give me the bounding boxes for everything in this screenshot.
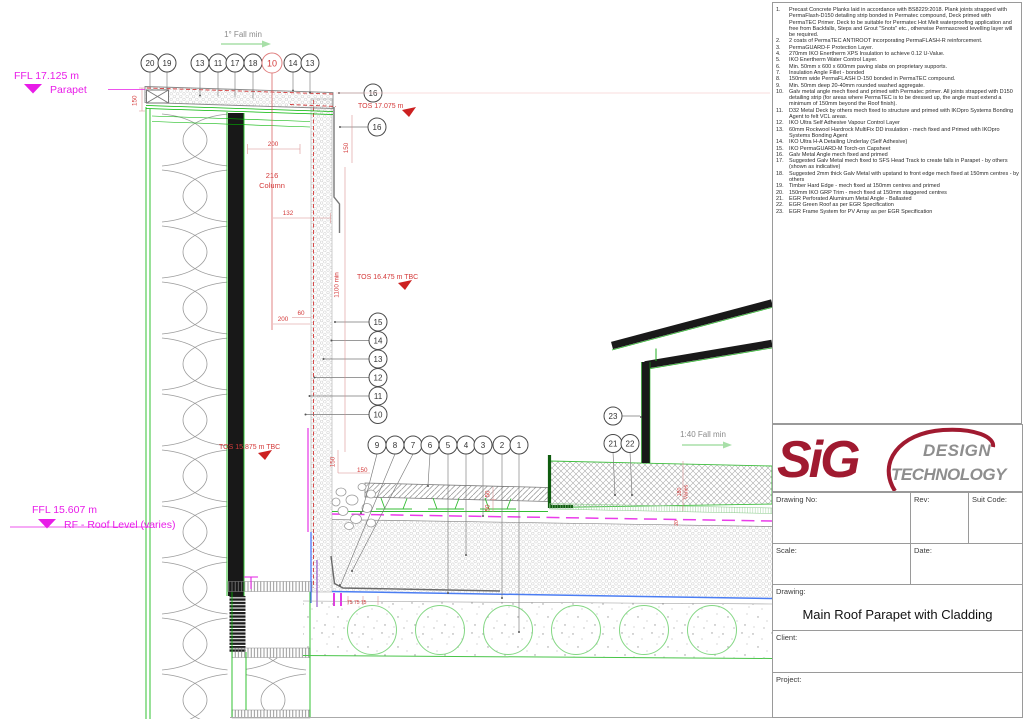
drawing-title-cell: Drawing: Main Roof Parapet with Cladding <box>772 584 1023 631</box>
tos-mid-label: TOS 16.475 m TBC <box>357 274 418 281</box>
suit-code-cell: Suit Code: <box>968 492 1023 544</box>
logo-design-text: DESIGN <box>923 441 991 460</box>
sig-logo-text: SiG <box>777 431 859 489</box>
note-item: 11.D32 Metal Deck by others mech fixed t… <box>776 108 1019 121</box>
level-triangle-icon <box>24 84 56 529</box>
callout-label: 14 <box>374 337 383 346</box>
concrete-plank <box>303 601 772 659</box>
logo-box: SiG DESIGN TECHNOLOGY <box>772 424 1023 492</box>
callout-label: 5 <box>446 441 451 450</box>
scale-label: Scale: <box>773 544 910 555</box>
callout-label: 17 <box>231 59 240 68</box>
dim-150-h: 150 <box>357 467 368 474</box>
callout-label: 7 <box>411 441 416 450</box>
callout-label: 14 <box>289 59 298 68</box>
fall-arrow-icon <box>723 442 732 449</box>
fall-roof-label: 1:40 Fall min <box>680 430 726 439</box>
drawing-sheet: 20 19 13 11 17 18 10 14 13 16 16 15 14 1… <box>0 0 1024 719</box>
title-panel: 1.Precast Concrete Planks laid in accord… <box>772 0 1024 719</box>
dim-1100: 1100 min <box>334 272 341 298</box>
callout-label: 18 <box>249 59 258 68</box>
note-item: 18.Suggested 2mm thick Galv Metal with u… <box>776 171 1019 184</box>
callout-label: 16 <box>369 89 378 98</box>
dim-75s: 75 75 75 <box>347 600 367 606</box>
callout-label: 1 <box>517 441 522 450</box>
callout-label: 13 <box>374 355 383 364</box>
dim-50b: 50 <box>485 504 492 512</box>
dim-180: 180 <box>677 488 683 497</box>
dim-150-mid: 150 <box>343 142 350 153</box>
green-roof <box>550 455 773 514</box>
callout-label: 12 <box>374 374 383 383</box>
ffl-parapet-label: FFL 17.125 m <box>14 70 79 82</box>
parapet-label: Parapet <box>50 84 87 96</box>
dim-50a: 50 <box>485 490 492 498</box>
dim-60: 60 <box>297 310 305 317</box>
callout-label: 11 <box>214 59 223 68</box>
drawing-no-label: Drawing No: <box>773 493 910 504</box>
dim-200: 200 <box>268 141 279 148</box>
callout-label: 22 <box>626 440 635 449</box>
date-label: Date: <box>911 544 1022 555</box>
dim-column-216: 216 <box>266 171 279 180</box>
callout-label: 23 <box>609 412 618 421</box>
callout-label: 16 <box>373 123 382 132</box>
client-label: Client: <box>773 631 1022 642</box>
callout-label: 19 <box>163 59 172 68</box>
note-item: 17.Suggested Galv Metal mech fixed to SF… <box>776 158 1019 171</box>
callout-label: 13 <box>306 59 315 68</box>
fall-arrow-icon <box>262 41 271 48</box>
dim-150-left: 150 <box>132 95 139 106</box>
drawing-title: Main Roof Parapet with Cladding <box>773 607 1022 622</box>
note-item: 13.60mm Rockwool Hardrock MultiFix DD in… <box>776 127 1019 140</box>
callout-label: 8 <box>393 441 398 450</box>
scale-cell: Scale: <box>772 543 911 585</box>
callout-label: 10 <box>374 411 383 420</box>
dim-varies: Varies <box>684 484 690 499</box>
rev-label: Rev: <box>911 493 968 504</box>
date-cell: Date: <box>910 543 1023 585</box>
callout-label-red: 10 <box>267 59 277 69</box>
roof-level-label: RF - Roof Level (varies) <box>64 519 175 531</box>
rev-cell: Rev: <box>910 492 969 544</box>
callout-label: 21 <box>609 440 618 449</box>
dim-150-v: 150 <box>330 456 337 467</box>
callout-label: 3 <box>481 441 486 450</box>
dim-132: 132 <box>283 210 294 217</box>
tos-low-label: TOS 15.875 m TBC <box>219 444 280 451</box>
note-item: 1.Precast Concrete Planks laid in accord… <box>776 7 1019 38</box>
callout-label: 9 <box>375 441 380 450</box>
logo-technology-text: TECHNOLOGY <box>891 465 1008 484</box>
notes-list: 1.Precast Concrete Planks laid in accord… <box>772 2 1022 424</box>
callout-label: 11 <box>374 392 383 401</box>
drawing-no-cell: Drawing No: <box>772 492 911 544</box>
callout-label: 4 <box>464 441 469 450</box>
dim-200b: 200 <box>278 316 289 323</box>
level-markers: TOS 17.075 m TOS 16.475 m TBC TOS 15.875… <box>10 70 770 531</box>
dim-20: 20 <box>674 520 680 526</box>
client-cell: Client: <box>772 630 1023 673</box>
timber-hard-edge <box>147 90 169 103</box>
dim-column-word: Column <box>259 181 285 190</box>
project-cell: Project: <box>772 672 1023 718</box>
detail-drawing: 20 19 13 11 17 18 10 14 13 16 16 15 14 1… <box>0 0 772 719</box>
note-item: 10.Galv metal angle mech fixed and prime… <box>776 89 1019 108</box>
suit-code-label: Suit Code: <box>969 493 1022 504</box>
ffl-roof-label: FFL 15.607 m <box>32 504 97 516</box>
callout-label: 15 <box>374 318 383 327</box>
callout-label: 2 <box>500 441 505 450</box>
callout-label: 20 <box>146 59 155 68</box>
sig-logo: SiG DESIGN TECHNOLOGY <box>773 425 1022 491</box>
callout-label: 6 <box>428 441 433 450</box>
note-item: 23.EGR Frame System for PV Array as per … <box>776 209 1019 215</box>
drawing-label: Drawing: <box>773 585 1022 596</box>
callout-label: 13 <box>196 59 205 68</box>
project-label: Project: <box>773 673 1022 684</box>
fall-top-label: 1° Fall min <box>224 30 262 39</box>
tos-top-label: TOS 17.075 m <box>358 103 404 110</box>
